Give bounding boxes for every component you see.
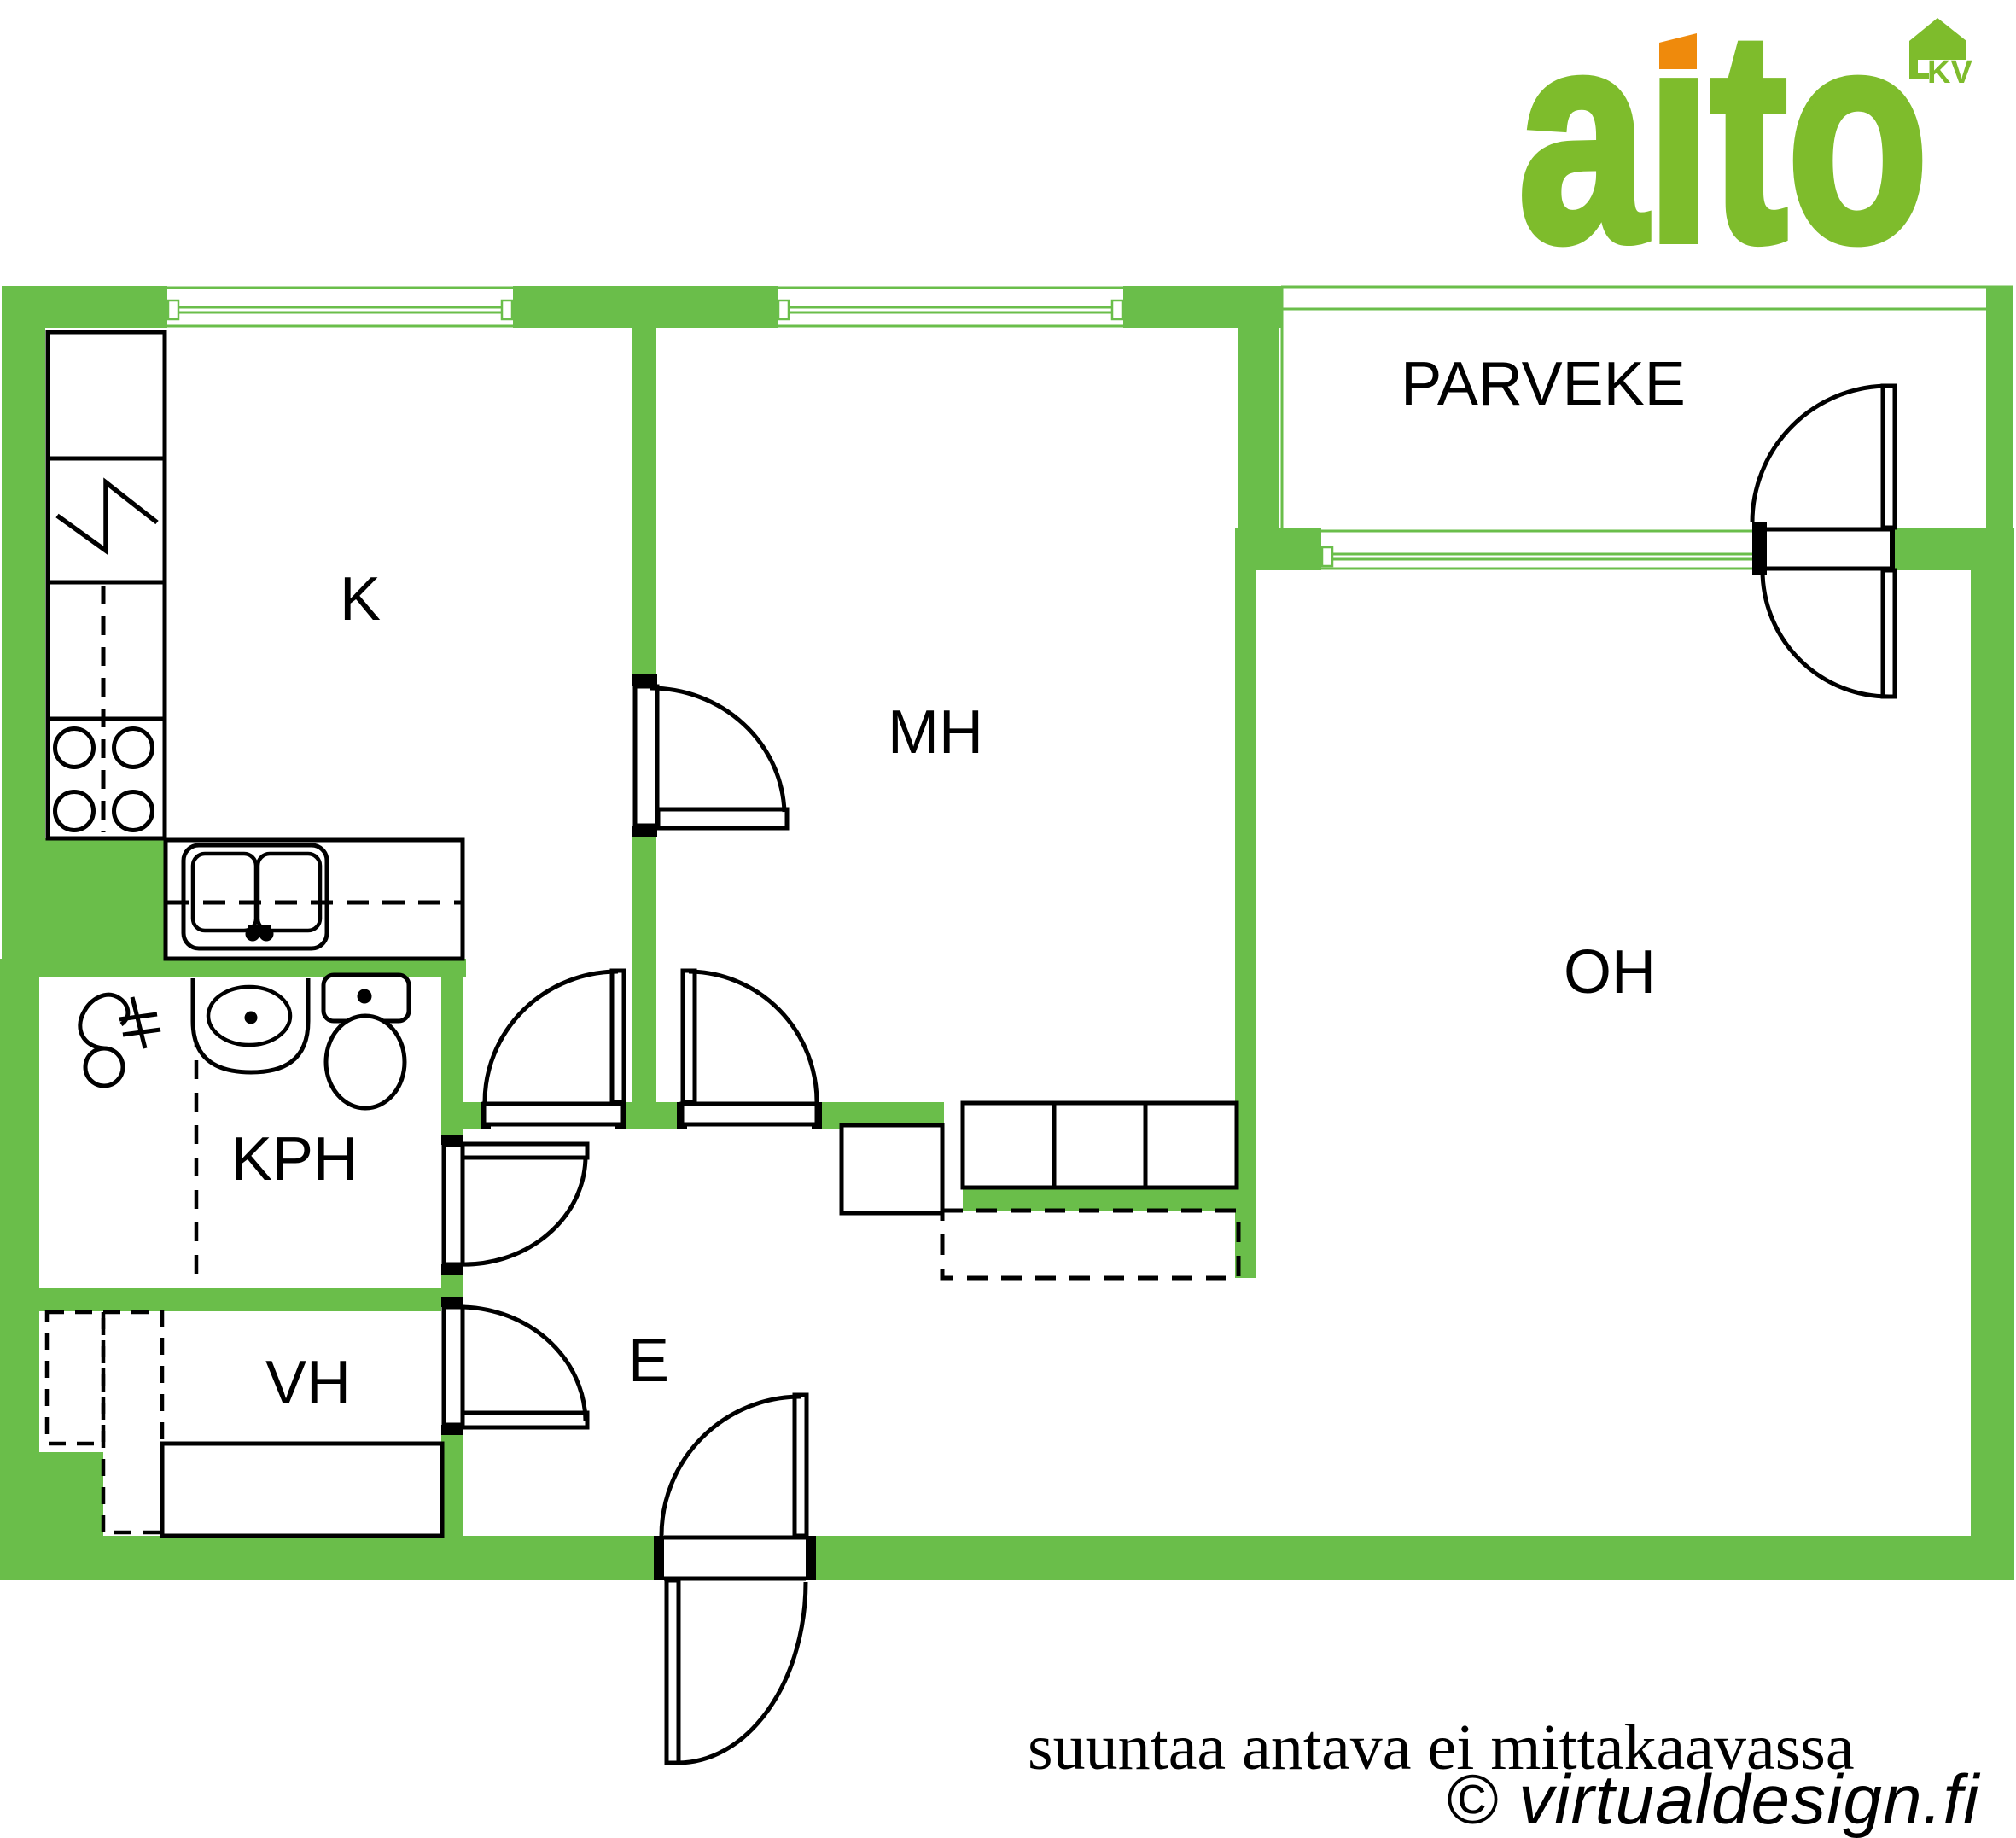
svg-text:KPH: KPH bbox=[231, 1125, 358, 1193]
svg-text:aıto: aıto bbox=[1518, 0, 1928, 304]
svg-text:KV: KV bbox=[1927, 55, 1972, 90]
svg-text:PARVEKE: PARVEKE bbox=[1401, 350, 1686, 418]
svg-text:OH: OH bbox=[1564, 938, 1656, 1007]
svg-text:E: E bbox=[628, 1327, 669, 1395]
svg-text:© virtualdesign.fi: © virtualdesign.fi bbox=[1446, 1761, 1981, 1838]
svg-text:MH: MH bbox=[888, 698, 983, 767]
svg-text:K: K bbox=[340, 565, 381, 633]
svg-text:VH: VH bbox=[265, 1349, 351, 1417]
